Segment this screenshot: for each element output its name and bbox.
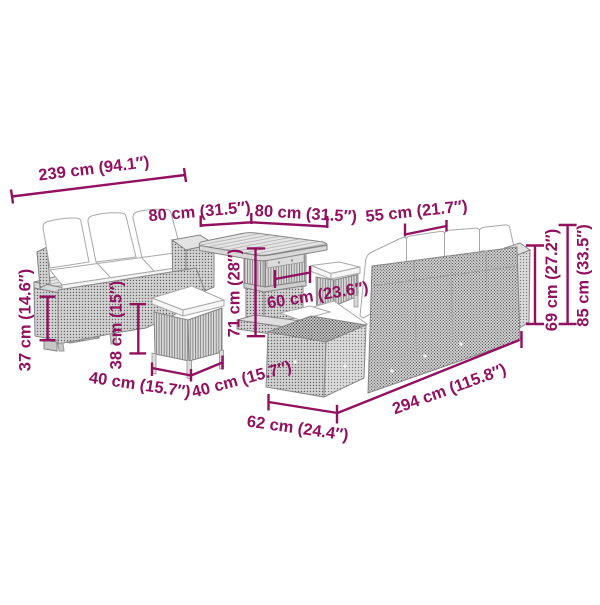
svg-text:38 cm (15″): 38 cm (15″) (108, 281, 126, 370)
svg-text:69 cm (27.2″): 69 cm (27.2″) (543, 229, 561, 331)
svg-text:37 cm (14.6″): 37 cm (14.6″) (17, 269, 35, 371)
svg-text:71 cm (28″): 71 cm (28″) (226, 249, 244, 338)
svg-text:85 cm (33.5″): 85 cm (33.5″) (575, 224, 593, 326)
